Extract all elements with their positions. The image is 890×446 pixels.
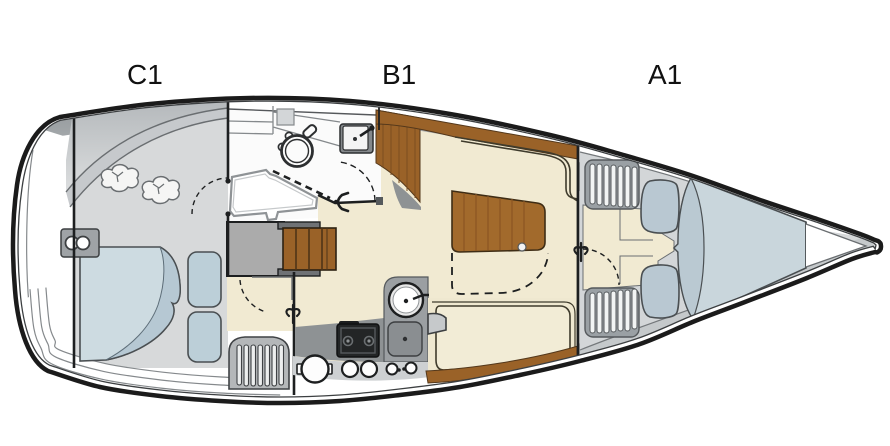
- svg-text:A1: A1: [648, 59, 682, 90]
- svg-text:C1: C1: [127, 59, 163, 90]
- svg-text:B1: B1: [382, 59, 416, 90]
